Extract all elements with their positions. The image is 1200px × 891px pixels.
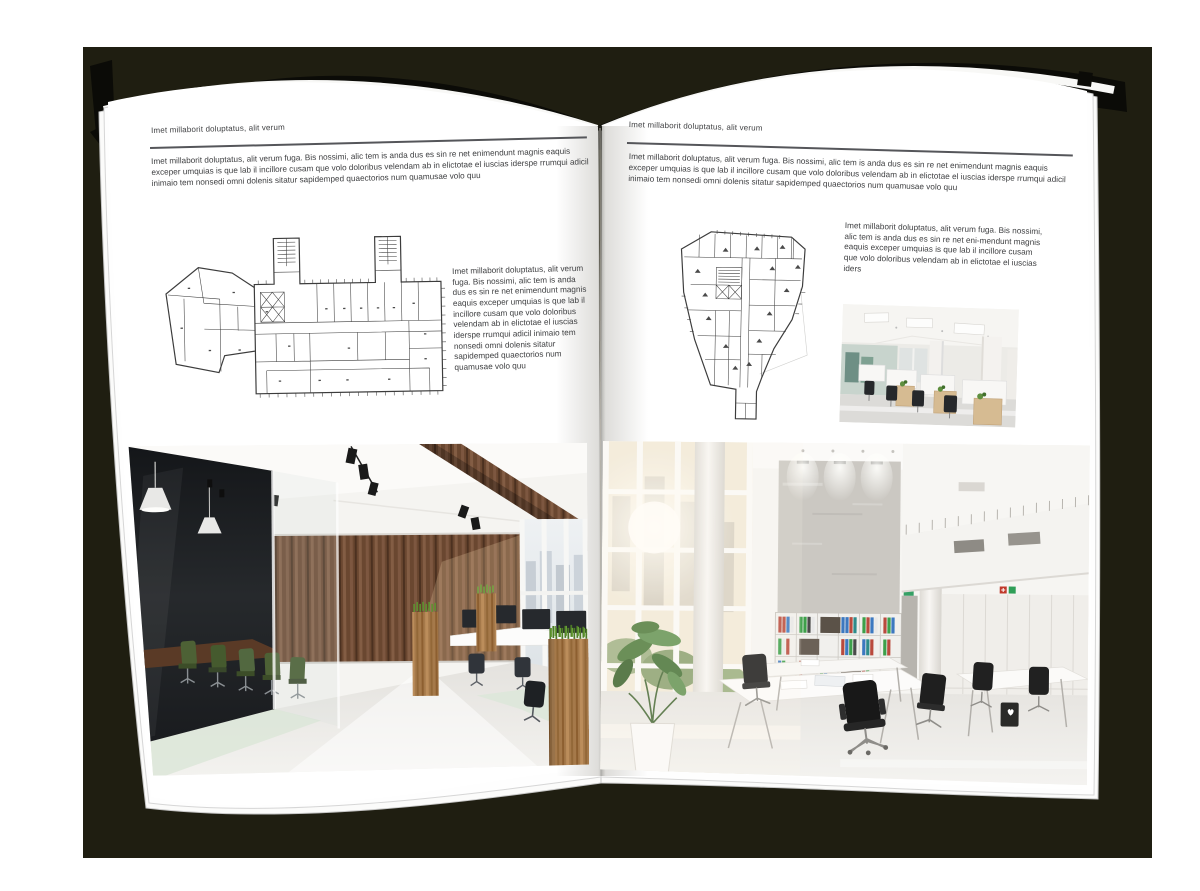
right-floor-plan [648, 221, 810, 435]
left-office-photo [123, 443, 589, 776]
right-small-photo [839, 304, 1019, 427]
floor-plan-drawing-right [648, 221, 810, 430]
left-floor-plan [157, 228, 450, 418]
left-side-text: Imet millaborit doluptatus, alit verum f… [452, 264, 589, 374]
floor-plan-drawing-left [157, 228, 450, 413]
right-office-photo [600, 441, 1090, 785]
right-side-text: Imet millaborit doluptatus, alit verum f… [843, 221, 1045, 281]
safety-sign [1009, 587, 1016, 594]
glass-meeting-room [123, 444, 340, 747]
